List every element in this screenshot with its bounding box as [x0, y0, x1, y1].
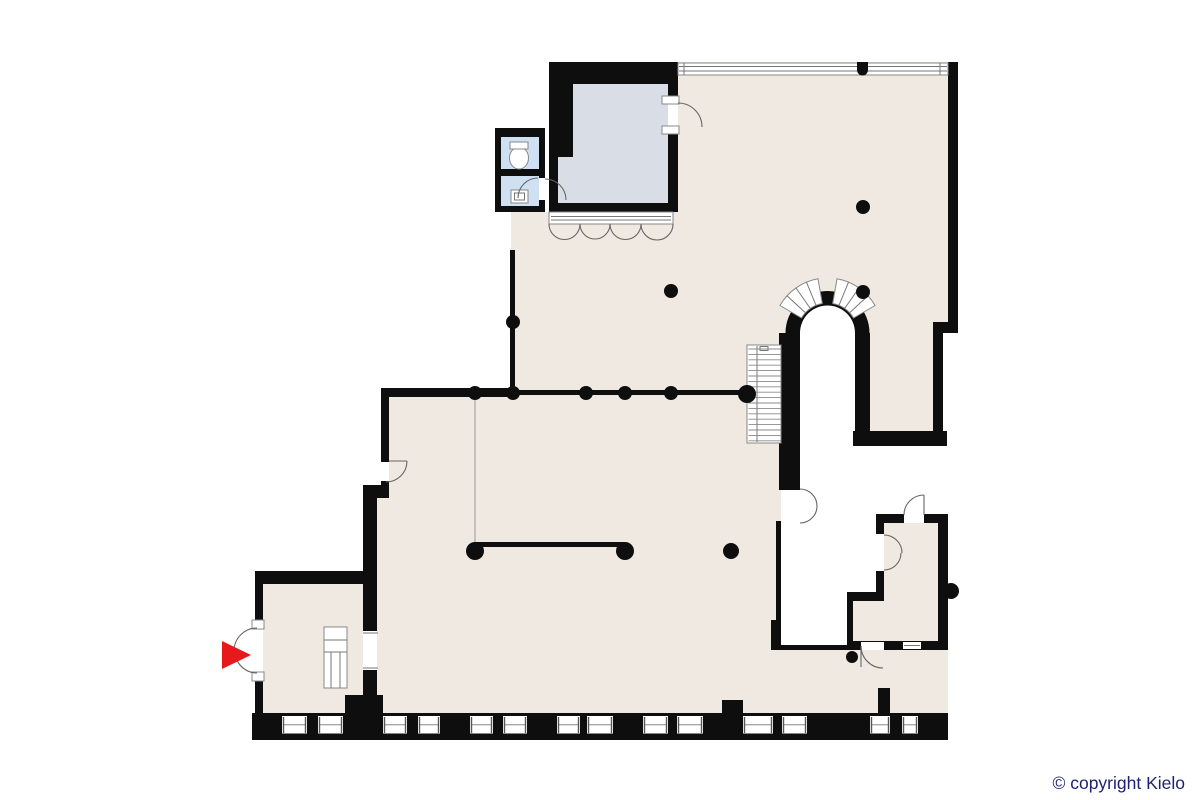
- right-room-east-wall: [938, 514, 948, 650]
- annex-left-wall: [549, 62, 573, 157]
- arch-left-wall: [779, 333, 800, 490]
- annex-door-gap: [668, 103, 678, 127]
- bathroom-divider-wall: [501, 169, 539, 176]
- entrance-room-floor: [257, 578, 366, 715]
- door-gap: [255, 628, 263, 673]
- entrance-north-wall: [255, 571, 370, 584]
- west-wall-jog: [363, 485, 389, 498]
- east-wall: [948, 62, 958, 333]
- column-dot: [846, 651, 858, 663]
- wall-opening: [363, 631, 377, 670]
- annex-floor: [558, 84, 668, 203]
- door-gap: [904, 514, 924, 523]
- toilet-tank-icon: [510, 142, 528, 149]
- entrance-door-swing: [234, 628, 257, 651]
- annex-right-wall: [668, 62, 678, 212]
- toilet-icon: [510, 147, 529, 169]
- right-room-floor: [847, 514, 948, 650]
- annex-door-jamb: [662, 126, 679, 134]
- annex-door-jamb: [662, 96, 679, 104]
- bottom-window-band: [252, 713, 948, 740]
- half-column: [857, 65, 868, 76]
- floor-plan-svg: © copyright Kielo: [0, 0, 1200, 800]
- bathroom-door-gap: [539, 178, 545, 200]
- counter-furniture: [324, 627, 347, 688]
- column-dot: [664, 284, 678, 298]
- storefront-glazing: [549, 212, 673, 224]
- half-column: [943, 583, 959, 599]
- wall-pier: [878, 688, 890, 715]
- wall-pier: [345, 695, 383, 715]
- window-glazing: [678, 63, 948, 75]
- arch-void: [800, 306, 855, 447]
- door-jamb: [252, 672, 264, 681]
- top-window-band: [678, 62, 948, 76]
- column-dot: [466, 542, 484, 560]
- entrance-arrow-icon: [222, 641, 251, 669]
- arched-opening: [779, 279, 875, 490]
- double-door-swing: [800, 489, 817, 506]
- column-dot: [664, 386, 678, 400]
- door-gap: [381, 462, 389, 481]
- door-gap: [876, 534, 884, 571]
- arch-right-wall: [855, 333, 870, 446]
- door-swing: [904, 495, 924, 515]
- column-dot: [468, 386, 482, 400]
- copyright-text: © copyright Kielo: [1052, 773, 1185, 793]
- east-wall-lower: [933, 322, 943, 446]
- column-dot: [506, 315, 520, 329]
- interior-partition-low: [474, 542, 625, 547]
- double-door-swing: [800, 506, 817, 523]
- column-dot: [616, 542, 634, 560]
- west-wall-lower: [363, 498, 377, 713]
- wall-pier: [722, 700, 743, 715]
- door-gap: [861, 642, 884, 650]
- column-dot: [618, 386, 632, 400]
- floor-plan-page: © copyright Kielo: [0, 0, 1200, 800]
- column-dot: [579, 386, 593, 400]
- west-wall-upper: [381, 388, 389, 462]
- annex-bottom-wall: [549, 203, 673, 212]
- column-dot: [738, 385, 756, 403]
- void-south-edge: [779, 645, 853, 650]
- sink-icon: [511, 190, 528, 203]
- mid-room-floor: [511, 212, 785, 395]
- column-dot: [506, 386, 520, 400]
- column-dot: [856, 200, 870, 214]
- column-dot: [856, 285, 870, 299]
- courtyard-north-wall: [853, 431, 947, 446]
- column-dot: [723, 543, 739, 559]
- lower-room-floor: [366, 388, 781, 718]
- lower-room-north-wall: [381, 388, 513, 397]
